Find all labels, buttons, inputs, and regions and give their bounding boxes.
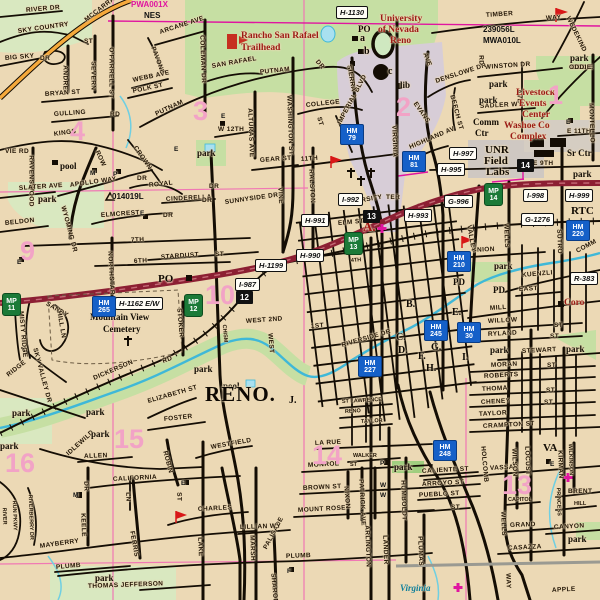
map-label: park (38, 195, 57, 204)
map-label: ARROYO ST (422, 480, 465, 489)
map-label: C. (396, 333, 406, 343)
map-label: KUENZLI (522, 270, 553, 279)
map-label: park (494, 262, 513, 271)
map-label: park (194, 365, 213, 374)
map-label: 11TH (301, 156, 319, 164)
map-label: E 9TH (533, 161, 553, 168)
map-label: RIDGE (6, 360, 28, 379)
map-label: CANYON (554, 523, 585, 531)
map-label: KEELE (79, 513, 86, 537)
map-label: ST (175, 492, 182, 501)
map-label: ST (554, 323, 563, 330)
site-badge: H-1162 E/W (115, 297, 163, 310)
hm-badge: HM79 (340, 124, 364, 145)
map-label: ST (547, 363, 556, 370)
map-label: DR (314, 59, 326, 71)
map-label: ELM ST (338, 219, 365, 228)
map-label: ELIZABETH ST (147, 385, 198, 405)
map-label: EVANS (411, 101, 430, 124)
map-label: RENO. (205, 384, 276, 405)
map-label: WELLS (499, 511, 506, 536)
map-label: VA (543, 443, 557, 454)
map-label: SUTRO (555, 229, 562, 254)
map-label: Cemetery (103, 325, 140, 334)
map-label: ODDIE (569, 65, 592, 72)
map-label: WESTFIELD (210, 438, 252, 452)
map-label: PALISADE (263, 516, 285, 550)
map-label: PRINCESS (554, 488, 560, 516)
map-label: RD (110, 112, 120, 119)
map-label: RENO (345, 409, 361, 415)
map-label: DR (209, 184, 219, 191)
map-label: P (113, 172, 117, 179)
map-label: PUEBLO ST (419, 491, 460, 500)
map-label: pool (60, 162, 77, 171)
map-label: ST (451, 505, 460, 512)
map-label: park (573, 170, 592, 179)
map-label: W (380, 493, 386, 500)
map-label: M (73, 493, 78, 500)
map-label: ST (215, 252, 224, 259)
map-label: WINSTON DR (485, 62, 531, 72)
map-label: CALIFORNIA (113, 475, 157, 484)
ex-badge: 14 (517, 159, 534, 172)
map-label: THOMA (482, 386, 508, 394)
map-label: park (394, 463, 413, 472)
map-label: park (489, 80, 508, 89)
map-label: BIG SKY (5, 53, 35, 62)
map-label: ROYAL (149, 180, 174, 189)
map-label: 4TH (351, 258, 362, 264)
map-label: E (221, 114, 225, 121)
map-label: LAKE (196, 537, 203, 557)
map-label: EAST (519, 286, 538, 293)
map-label: LANDER (381, 535, 389, 565)
map-label: WEST 2ND (246, 316, 283, 325)
map-label: park (197, 149, 216, 158)
map-label: ROBIN (161, 450, 173, 474)
map-label: HUMBOLDT (399, 480, 407, 521)
map-label: MILL (490, 305, 507, 313)
map-label: b (364, 47, 370, 57)
map-label: 14 (312, 442, 342, 469)
map-label: ROW (93, 150, 106, 168)
map-label: park (86, 408, 105, 417)
map-label: park (91, 430, 110, 439)
map-label: ST (315, 116, 324, 126)
map-label: P (380, 461, 384, 468)
site-badge: H-1199 (255, 259, 287, 272)
map-label: ST (84, 39, 93, 46)
map-label: MCCARRAN (84, 0, 121, 24)
map-label: SUNNYSIDE DR (225, 193, 279, 207)
map-label: DR (163, 213, 173, 220)
map-label: RALSTON (307, 169, 315, 203)
map-label: TIMBER (486, 11, 514, 19)
site-badge: H-995 (437, 163, 465, 176)
mp-badge: MP13 (344, 232, 363, 255)
map-label: PLUMB (286, 553, 311, 560)
map-label: FERRIS (128, 531, 139, 558)
map-label: c (388, 67, 392, 77)
site-badge: H-993 (404, 209, 432, 222)
map-label: CHENEY (481, 398, 511, 406)
map-label: G. (431, 343, 441, 353)
map-label: PO (158, 274, 173, 285)
map-label: 6TH (134, 258, 148, 265)
site-badge: G-996 (444, 195, 473, 208)
map-label: E (566, 120, 570, 127)
site-badge: G-1276 (521, 213, 554, 226)
map-label: 15 (114, 426, 144, 453)
map-label: Comm (473, 118, 499, 127)
map-label: HILL (574, 502, 586, 508)
map-label: of Nevada (378, 26, 419, 36)
map-label: CASAZZA (508, 544, 542, 552)
map-label: WAY (546, 15, 562, 23)
site-badge: I-998 (523, 189, 548, 202)
map-label: SKY VALLEY DR (31, 347, 52, 403)
map-label: lib (400, 81, 410, 90)
map-label: 239056L (483, 26, 515, 34)
map-label: MARSH (248, 535, 255, 561)
hm-badge: HM30 (457, 322, 481, 343)
map-label: WALKER (353, 454, 377, 460)
map-label: PD (493, 286, 505, 295)
map-label: a (360, 34, 365, 44)
map-label: park (490, 346, 509, 355)
map-label: ROBERTS (484, 372, 519, 380)
map-label: WYOMING DR (59, 205, 78, 253)
map-label: STOKER (175, 308, 184, 338)
map-label: MONTELLO (587, 103, 595, 143)
map-label: RIVERSIDE DR (341, 329, 392, 349)
map-label: W (380, 483, 386, 490)
map-label: PLUMAS (416, 536, 424, 566)
map-label: MORAN (491, 362, 518, 370)
map-label: DR (202, 198, 212, 205)
map-label: ST (550, 334, 559, 341)
map-label: O'FARRELL ST (107, 47, 114, 98)
map-label: F. (418, 352, 426, 362)
map-label: E (140, 211, 144, 218)
map-label: 1ST (311, 323, 325, 330)
map-label: 1 (548, 82, 563, 109)
map-label: Trailhead (241, 44, 280, 54)
map-label: CRAMPTON ST (483, 421, 535, 430)
map-label: RD (162, 356, 174, 366)
map-label: VIRGINIA (390, 125, 398, 157)
map-label: park (479, 96, 498, 105)
site-badge: H-991 (301, 214, 329, 227)
map-label: COLLEGE (306, 99, 341, 109)
map-label: CALIENTE ST (422, 467, 469, 476)
map-label: ST (544, 400, 553, 407)
mp-badge: MP11 (2, 293, 21, 316)
map-label: E (181, 481, 185, 488)
map-label: COLEMAN DR (198, 35, 206, 83)
map-label: APOLLO WAY (70, 176, 118, 189)
map-label: University (380, 15, 422, 25)
map-label: PWA001X (131, 1, 168, 9)
map-label: WEDEKIND (564, 16, 587, 54)
map-label: RIVER DR (26, 5, 61, 14)
map-label: FOSTER (164, 414, 193, 423)
map-label: Reno (390, 37, 411, 47)
hm-badge: HM227 (358, 356, 382, 377)
map-label: ALTURAS AVE (246, 108, 254, 158)
hm-badge: HM81 (402, 151, 426, 172)
map-label: ST (546, 388, 555, 395)
map-label: E (174, 147, 178, 154)
map-label: 4 (70, 118, 85, 145)
map-label: CROWN (131, 145, 152, 171)
ex-badge: 12 (236, 291, 253, 304)
map-label: 014019L (112, 193, 144, 201)
map-label: PLUMB (56, 563, 82, 572)
map-label: Rancho San Rafael (241, 32, 319, 42)
map-label: TER (386, 195, 400, 202)
map-label: park (12, 409, 31, 418)
map-label: D. (398, 346, 408, 356)
site-badge: H-997 (449, 147, 477, 160)
map-label: STARDUST (161, 252, 199, 261)
map-label: PATRICK AVE (357, 479, 366, 526)
map-label: SLATER AVE (19, 183, 63, 193)
map-label: WEST (266, 333, 274, 354)
map-label: WAY (504, 573, 511, 589)
map-label: B. (406, 300, 415, 310)
site-badge: I-987 (235, 278, 260, 291)
map-label: VIE RD (5, 149, 29, 156)
map-label: ARLINGTON (363, 525, 371, 567)
map-label: RAVENSWOOD (27, 155, 34, 207)
map-label: J. (289, 396, 297, 406)
map-label: Labs (486, 167, 509, 178)
map-label: KIRMAN (556, 450, 563, 479)
map-label: SKY COUNTRY (18, 22, 70, 36)
map-label: TAYLOR (361, 419, 383, 426)
map-label: Virginia (400, 584, 431, 593)
map-label: SHARON (269, 573, 278, 600)
map-label: COMM (575, 239, 598, 255)
map-label: WELLS (502, 223, 509, 248)
map-label: 13 (502, 472, 532, 499)
map-label: NES (144, 12, 160, 20)
map-label: Complex (510, 133, 546, 143)
map-label: Washoe Co (504, 122, 550, 132)
map-label: STEWART (522, 347, 557, 355)
map-label: 16 (5, 450, 35, 477)
map-label: E (550, 462, 554, 469)
map-label: DICKERSON (93, 360, 135, 383)
map-label: DR (82, 481, 89, 491)
map-label: RUN PKWY (10, 501, 17, 531)
map-label: E. (452, 308, 461, 318)
map-label: park (95, 574, 114, 583)
map-label: MOUNT ROSE (298, 505, 346, 514)
hm-badge: HM220 (566, 220, 590, 241)
map-label: 2 (396, 94, 411, 121)
map-label: park (566, 345, 585, 354)
map-label: park (568, 535, 587, 544)
map-label: Events (519, 100, 546, 110)
map-label: DR (137, 176, 147, 183)
map-label: WASHINGTON ST (285, 95, 294, 155)
mp-badge: MP12 (184, 294, 203, 317)
map-canvas[interactable]: RIVER DRSKY COUNTRYBIG SKYDRMCCARRANARCA… (0, 0, 600, 600)
map-label: SIERRA (345, 65, 356, 93)
map-label: ST LAWRENCE (342, 398, 382, 406)
map-label: M (90, 171, 95, 178)
map-label: Coro (564, 299, 584, 309)
site-badge: H-999 (565, 189, 593, 202)
map-label: BROWN ST (303, 484, 342, 493)
map-label: TAYLOR (479, 411, 507, 419)
map-label: Ctr (475, 129, 489, 138)
map-label: RYLAND (488, 330, 518, 338)
map-label: RD (477, 55, 484, 65)
ex-badge: 13 (363, 210, 380, 223)
map-label: I. (462, 353, 468, 363)
mp-badge: MP14 (484, 183, 503, 206)
map-label: BRYAN ST (45, 90, 81, 99)
map-label: NORTHSTAR (106, 251, 115, 295)
map-label: 7TH (131, 237, 145, 244)
map-label: WEBB AVE (132, 70, 170, 84)
map-label: CHARLES (198, 505, 233, 513)
map-label: APPLE (552, 587, 576, 595)
map-label: BELDON (5, 218, 35, 228)
map-label: GRAND (510, 522, 536, 529)
map-label: RIVER (0, 508, 6, 525)
hm-badge: HM265 (92, 296, 116, 317)
map-label: CHISM (220, 325, 227, 343)
map-label: BRENT (568, 489, 592, 496)
map-label: park (570, 54, 589, 63)
map-label: 9 (20, 238, 35, 265)
site-badge: H-1130 (336, 6, 368, 19)
map-label: ARCANE AVE (159, 16, 205, 36)
map-label: PD (453, 278, 465, 287)
map-label: RTC (571, 206, 594, 217)
map-label: WILLOW (488, 317, 518, 325)
map-label: PUTNAM (155, 100, 185, 119)
map-label: DENSLOWE DR (435, 63, 488, 86)
map-label: PUTNAM (260, 67, 291, 77)
map-label: WILKINSON (566, 444, 573, 476)
map-label: W 12TH (218, 127, 244, 134)
map-label: F (287, 569, 291, 576)
map-label: 3 (193, 98, 208, 125)
site-badge: R-383 (570, 272, 598, 285)
map-label: SAN RAFAEL (211, 56, 257, 70)
map-label: ALLEN (84, 453, 108, 460)
map-label: AVE (421, 52, 432, 67)
hm-badge: HM245 (424, 320, 448, 341)
map-label: Sr Ctr (567, 149, 592, 158)
map-labels: RIVER DRSKY COUNTRYBIG SKYDRMCCARRANARCA… (0, 0, 600, 600)
map-label: MISTY RIDGE (17, 311, 28, 358)
map-label: ST (350, 463, 357, 469)
map-label: SEVERN (89, 61, 96, 90)
map-label: VALLEY (465, 225, 476, 253)
hm-badge: HM248 (433, 440, 457, 461)
site-badge: H-990 (296, 249, 324, 262)
map-label: LN (124, 492, 131, 502)
map-label: Center (522, 111, 550, 121)
site-badge: I-992 (338, 193, 363, 206)
map-label: POLK ST (132, 83, 164, 96)
map-label: RIVERBERRY DR (26, 495, 33, 540)
map-label: 10 (205, 282, 235, 309)
map-label: ELMCREST (101, 210, 140, 219)
map-label: GEAR ST (260, 156, 292, 165)
hm-badge: HM210 (447, 251, 471, 272)
map-label: MWA010L (483, 37, 521, 45)
map-label: DR (40, 56, 50, 63)
map-label: NIXON (342, 486, 350, 509)
map-label: H. (426, 364, 436, 374)
map-label: HOLCOMB (479, 446, 489, 483)
map-label: MAYBERRY (40, 539, 80, 551)
